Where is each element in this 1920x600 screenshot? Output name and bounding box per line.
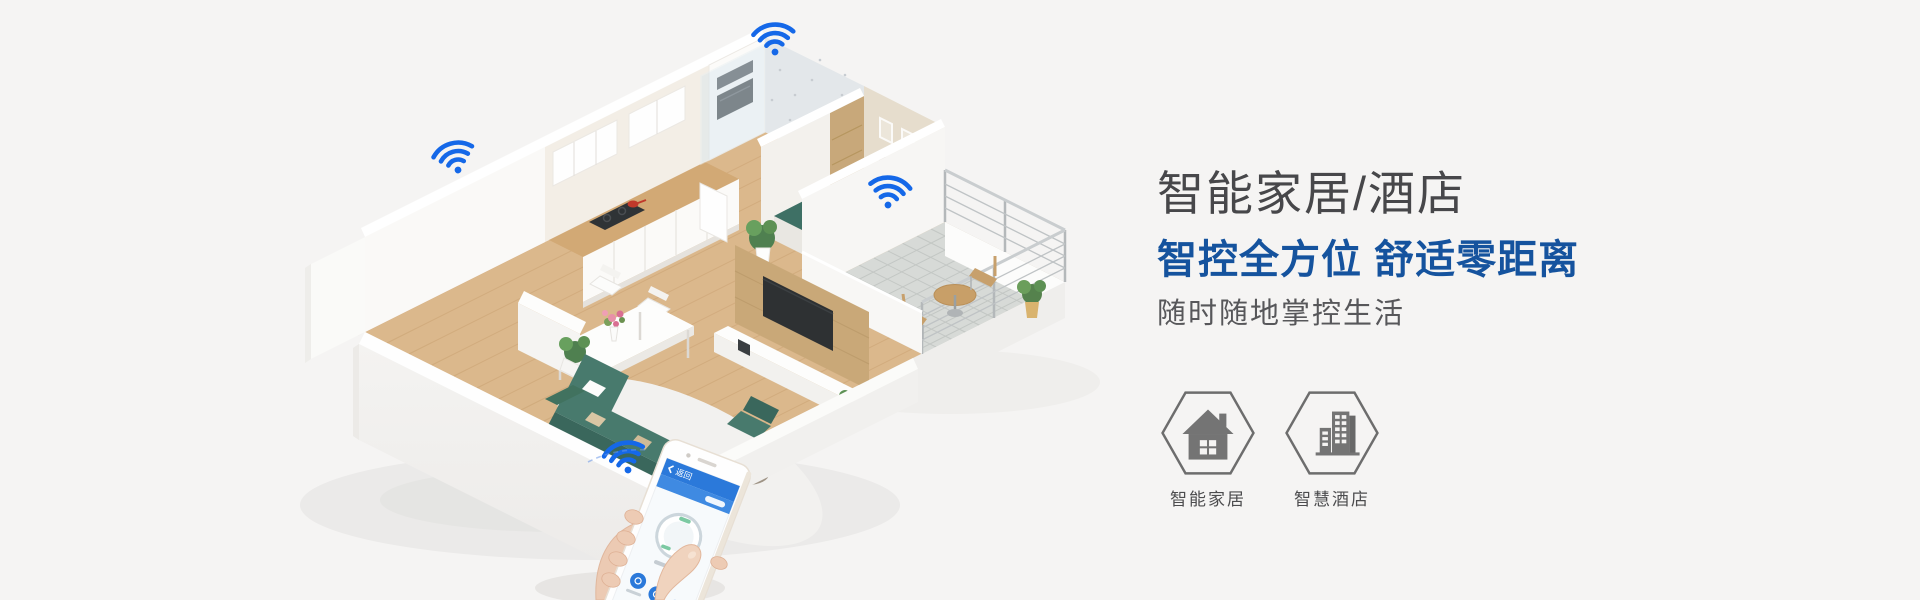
hero-title: 智能家居/酒店 <box>1157 168 1579 220</box>
feature-label: 智能家居 <box>1158 485 1258 510</box>
house-icon <box>1161 390 1255 476</box>
hero-subtitle: 智控全方位 舒适零距离 <box>1157 238 1579 282</box>
hero-text-block: 智能家居/酒店 智控全方位 舒适零距离 随时随地掌控生活 <box>1157 168 1579 331</box>
hotel-buildings-icon <box>1285 390 1379 476</box>
feature-smart-hotel[interactable]: 智慧酒店 <box>1282 390 1382 510</box>
feature-label: 智慧酒店 <box>1282 485 1382 510</box>
wifi-icon <box>431 138 478 179</box>
hero-tagline: 随时随地掌控生活 <box>1157 297 1579 331</box>
hero-banner: 返回 <box>0 0 1920 600</box>
feature-list: 智能家居 智慧酒店 <box>1158 390 1382 510</box>
feature-smart-home[interactable]: 智能家居 <box>1158 390 1258 510</box>
smart-apartment-illustration: 返回 <box>0 0 1920 600</box>
